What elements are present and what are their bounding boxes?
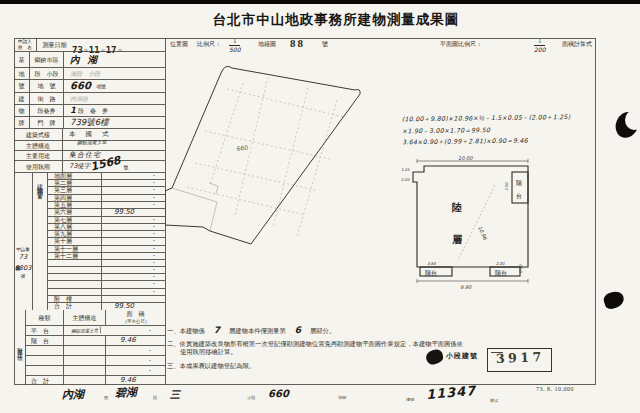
address-house-row: 牌 門 牌 739號6樓: [14, 117, 165, 129]
address-lane-row: 物 段巷弄 1 段 巷 弄: [14, 105, 165, 117]
floor-row-label: 第八層: [48, 224, 102, 230]
house-number-label: 門 牌: [30, 117, 64, 128]
annex-row: ·: [26, 356, 165, 366]
floor-row: ·: [48, 274, 165, 281]
balcony-tr-label-2: 台: [516, 192, 522, 200]
site-district-row: 基 鄉鎮市區 內湖: [14, 52, 165, 68]
application-label: 申請書: [16, 246, 30, 252]
floor-row-label: 第三層: [48, 187, 102, 193]
floor-row: ·: [48, 289, 165, 296]
footer-section-unit: 段: [153, 396, 157, 400]
balcony-br-label: 陽台: [495, 269, 507, 277]
note1-text-b: 層建物本件僅測量第: [229, 327, 286, 334]
applicant-label-line2: 姓 名: [16, 45, 33, 50]
site-parcel-row: 號 地 號 660 地號: [14, 80, 165, 93]
scan-ink-blob-2: [602, 289, 626, 310]
floor-row-value: ·: [102, 260, 165, 266]
floor-row: 第九層 ·: [48, 231, 165, 238]
cadastral-map-unit: 號: [322, 41, 328, 47]
annex-kind: 陽 台: [26, 336, 64, 345]
cadastral-map-label: 地籍圖: [258, 41, 276, 47]
annex-kind-header: 種類: [26, 310, 64, 325]
dim-balcony-tr: 3.50: [504, 182, 509, 191]
annex-area: ·: [106, 348, 165, 354]
floor-row-label: 合 計: [48, 303, 102, 310]
street-value: 內湖路: [70, 96, 88, 102]
parcel-unit: 地號: [96, 84, 106, 89]
floor-plan-drawing: 陸 層 陽 台 陽台 陽台 10.00 9.90 10.96 1.25 2.00…: [400, 155, 596, 295]
section-label: 段 小段: [30, 68, 64, 79]
annex-area: ·: [106, 368, 165, 374]
address-street-row: 建 街 路 內湖路: [14, 93, 165, 105]
scanned-survey-document: 台北市中山地政事務所建物測量成果圖 申請人 姓 名 測量日期 73年11月17日…: [0, 0, 640, 413]
floor-row: 第十一層 ·: [48, 246, 165, 253]
footer-line: 內湖 區 碧湖 段 三 小段 660 地號 建號 11347 棟次 73. 8.…: [0, 386, 640, 413]
floor-row-label: 第十層: [48, 238, 102, 244]
applicant-name-cell: 申請人 姓 名: [14, 38, 37, 52]
floor-row: 第十層 ·: [48, 238, 165, 245]
floor-row-label: 第九層: [48, 231, 102, 237]
floor-row-label: [48, 274, 102, 280]
floor-row-value: ·: [102, 217, 165, 223]
annex-area: 9.46: [106, 377, 165, 384]
site-stub-3: 號: [14, 80, 30, 92]
district-label: 鄉鎮市區: [30, 52, 64, 67]
application-unit: 號: [16, 273, 30, 279]
dim-notch-2: 2.00: [401, 177, 410, 182]
floor-row-value: 99.50: [102, 209, 165, 216]
location-map-label: 位置圖: [170, 41, 188, 47]
floor-row-label: 第十一層: [48, 246, 102, 252]
footer-building-number: 11347: [426, 384, 477, 401]
floor-row-value: ·: [102, 289, 165, 295]
floor-row-label: 附 樓: [48, 296, 102, 302]
annex-structure: [64, 336, 106, 345]
scan-ink-blob-1-cut: [625, 110, 640, 130]
footer-building-label: 建號: [406, 398, 415, 402]
annex-area-header-line2: （平方公尺）: [122, 318, 149, 323]
location-scale-fraction: 1 500: [229, 38, 240, 53]
annex-structure: [64, 346, 106, 355]
structure-row: 主體構造 鋼筋混凝土造: [14, 141, 165, 151]
note1-text-a: 本建物係: [180, 327, 205, 334]
footer-parcel: 660: [268, 389, 289, 399]
floor-row-value: ·: [102, 231, 165, 237]
room-label-1: 陸: [452, 202, 462, 213]
area-formula: (10.00＋9.80)×10.96×½－1.5×0.05－(2.00＋1.25…: [402, 111, 594, 148]
note-line-1: 一、本建物係7層建物本件僅測量第6層部分。: [167, 326, 467, 336]
annex-stub: 附屬建物: [14, 310, 26, 385]
survey-date-label: 測量日期: [37, 38, 72, 52]
annex-structure: [64, 376, 106, 385]
plan-scale-fraction: 1 200: [534, 38, 545, 53]
site-section-row: 地 段 小段 湖段 小段: [14, 68, 165, 80]
dim-bottom: 9.90: [460, 284, 472, 290]
annex-kind: [26, 346, 64, 355]
floor-row: 第四層 ·: [48, 195, 165, 202]
annex-area-header: 面 積 （平方公尺）: [106, 310, 165, 325]
floor-row: 第二層 ·: [48, 180, 165, 187]
annex-area: ·: [106, 328, 165, 334]
section-value: 湖段 小段: [70, 71, 100, 77]
location-scale-label: 比例尺：: [197, 41, 221, 47]
floor-row-value: ·: [102, 224, 165, 230]
floor-row-value: 99.50: [102, 303, 165, 310]
annex-row: 陽 台 9.46: [26, 336, 165, 346]
address-stub-3: 牌: [14, 117, 30, 128]
location-scale-numerator: 1: [229, 38, 240, 46]
address-stub-2: 物: [14, 105, 30, 116]
floor-row-label: 第四層: [48, 195, 102, 201]
floor-row-value: ·: [102, 253, 165, 259]
plan-scale-numerator: 1: [534, 38, 545, 46]
floor-row-value: ·: [102, 281, 165, 287]
floor-area-stub-main: 建物面積: [37, 179, 43, 187]
floor-row: 地面層 ·: [48, 173, 165, 180]
application-number-block: 申請書 73 宙字第 8803 號: [14, 245, 32, 280]
floor-row: 第三層 ·: [48, 187, 165, 194]
area-formula-label: 面積計算式: [562, 41, 592, 47]
floor-area-stub: 建物面積 （平方公尺）: [32, 173, 48, 310]
floor-row-label: [48, 281, 102, 287]
floor-row-label: 第七層: [48, 217, 102, 223]
annex-structure: [64, 356, 106, 365]
floor-row: ·: [48, 260, 165, 267]
floor-row: ·: [48, 281, 165, 288]
plan-scale-label: 平面圖比例尺：: [440, 41, 482, 47]
survey-date-value: 73年11月17日: [72, 38, 165, 52]
site-stub-2: 地: [14, 68, 30, 79]
annex-kind: [26, 356, 64, 365]
cadastral-map-number: 88: [290, 38, 305, 49]
floor-row: 第十二層 ·: [48, 253, 165, 260]
building-style-label: 建築式樣: [14, 129, 63, 140]
location-map-sketch: 660: [165, 55, 380, 300]
footer-section: 碧湖: [115, 387, 137, 399]
floor-row: 第五層 ·: [48, 202, 165, 209]
floor-row: 第七層 ·: [48, 217, 165, 224]
floor-row-label: [48, 267, 102, 273]
document-title: 台北市中山地政事務所建物測量成果圖: [200, 13, 472, 27]
structure-value: 鋼筋混凝土造: [77, 139, 107, 145]
dim-top: 10.00: [458, 155, 473, 161]
use-license-label: 使用執照: [14, 161, 63, 172]
location-scale-denominator: 500: [229, 46, 240, 53]
floor-row-label: 第二層: [48, 180, 102, 186]
dim-notch-1: 1.25: [401, 167, 410, 172]
parcel-boundary: [165, 66, 360, 244]
address-stub-1: 建: [14, 93, 30, 104]
annex-area-header-line1: 面 積: [127, 311, 145, 318]
application-series: 宙字第: [15, 261, 21, 263]
print-code: 73. 8. 10.000: [536, 386, 574, 392]
floor-row-value: ·: [102, 246, 165, 252]
room-label-2: 層: [451, 234, 462, 245]
floor-row-label: 第十二層: [48, 253, 102, 259]
footer-district-unit: 區: [104, 396, 108, 400]
main-use-row: 主要用途 集合住宅: [14, 151, 165, 161]
floor-row-label: 地面層: [48, 173, 102, 179]
parcel-label: 地 號: [30, 80, 64, 92]
annex-row: 平 台 鋼筋混凝土造 ·: [26, 326, 165, 336]
annex-row: ·: [26, 366, 165, 376]
floor-row-value: ·: [102, 238, 165, 244]
building-style-value: 本 國 式: [69, 131, 110, 137]
annex-structure: [64, 366, 106, 375]
license-prefix: 73使字: [69, 163, 90, 170]
dim-balcony-br: 2.81: [496, 261, 505, 266]
floor-row-value: ·: [102, 173, 165, 179]
floor-row-value: ·: [102, 180, 165, 186]
note1-text-c: 層部分。: [310, 327, 335, 334]
floor-row-label: [48, 260, 102, 266]
note1-floor-count: 7: [214, 325, 220, 335]
annex-row: 合 計 9.46: [26, 376, 165, 385]
floor-row-value: ·: [102, 195, 165, 201]
floor-plan-labels: 陸 層 陽 台 陽台 陽台: [425, 179, 522, 277]
main-use-label: 主要用途: [14, 151, 63, 160]
floor-row: 合 計 99.50: [48, 303, 165, 310]
annex-area: ·: [106, 358, 165, 364]
plan-scale-denominator: 200: [534, 46, 545, 53]
parcel-step-lines: [172, 183, 218, 231]
annex-table: 平 台 鋼筋混凝土造 · 陽 台 9.46 · · · 合 計: [26, 326, 165, 385]
floor-row-label: 第五層: [48, 202, 102, 208]
footer-parcel-unit: 地號: [338, 396, 347, 400]
dim-diagonal: 10.96: [477, 225, 489, 241]
floor-row-label: 第六層: [48, 209, 102, 216]
note1-number: 一、: [167, 327, 180, 334]
footer-subsection-unit: 小段: [247, 396, 256, 400]
interior-parcel-lines: [187, 77, 343, 237]
structure-label: 主體構造: [14, 141, 63, 150]
stamp-label: 小段建號: [446, 353, 478, 360]
dim-side-right: 0.90: [518, 264, 523, 273]
street-label: 街 路: [30, 93, 64, 104]
site-stub-1: 基: [14, 52, 30, 67]
footer-district: 內湖: [62, 389, 84, 400]
floor-row: 附 樓: [48, 296, 165, 303]
annex-kind: 平 台: [26, 326, 64, 335]
map-parcel-number: 660: [236, 143, 248, 152]
note-line-2: 二、依實施建築改良物所有權第一次登記僅勘測建物位置免再勘測建物平面圖作業規定，本…: [167, 340, 467, 357]
applicant-label-line1: 申請人: [16, 39, 33, 44]
license-unit: 號: [124, 164, 129, 169]
parcel-number: 660: [70, 81, 91, 91]
site-address-table: 基 鄉鎮市區 內湖 地 段 小段 湖段 小段 號 地 號 660 地號 建 街 …: [14, 52, 165, 173]
floor-plan-outline: [413, 166, 528, 276]
floor-row: ·: [48, 267, 165, 274]
note-line-3: 三、本成果表以建物登記為限。: [167, 362, 467, 371]
floor-row: 第八層 ·: [48, 224, 165, 231]
annex-stub-label: 附屬建物: [17, 342, 22, 353]
application-number: 8803: [14, 264, 32, 272]
balcony-tr-label-1: 陽: [516, 179, 522, 187]
notes-section: 一、本建物係7層建物本件僅測量第6層部分。 二、依實施建築改良物所有權第一次登記…: [167, 326, 467, 370]
stamp-number: 3917: [496, 351, 545, 366]
use-license-row: 使用執照 73使字 1568 號: [14, 161, 165, 173]
floor-row-value: ·: [102, 274, 165, 280]
house-number-value: 739號6樓: [70, 118, 109, 127]
dim-balcony-bl: 3.64: [427, 261, 436, 266]
annex-kind: 合 計: [26, 376, 64, 385]
annex-header: 種類 主體構造 面 積 （平方公尺）: [26, 310, 165, 326]
floor-row-value: ·: [102, 187, 165, 193]
annex-kind: [26, 366, 64, 375]
floor-row-value: ·: [102, 267, 165, 273]
balcony-bl-label: 陽台: [425, 269, 437, 277]
annex-structure: 鋼筋混凝土造: [69, 327, 101, 335]
annex-row: ·: [26, 346, 165, 356]
annex-area: 9.46: [106, 337, 165, 344]
annex-structure-header: 主體構造: [64, 310, 106, 325]
floor-row: 第六層 99.50: [48, 209, 165, 217]
floor-area-table: 地面層 · 第二層 · 第三層 · 第四層 · 第五層 · 第六層 99.50 …: [48, 173, 165, 310]
note1-floor-measured: 6: [295, 325, 301, 335]
district-value: 內湖: [70, 55, 105, 65]
lane-print: 段 巷 弄: [78, 108, 108, 114]
floor-row-value: ·: [102, 202, 165, 208]
lane-number: 1: [70, 106, 76, 115]
floor-row-label: [48, 289, 102, 295]
footer-subsection: 三: [170, 390, 180, 400]
footer-building-suffix: 棟次: [490, 399, 499, 403]
scan-edge-bar: [0, 0, 640, 4]
main-use-value: 集合住宅: [69, 152, 101, 159]
lane-label: 段巷弄: [30, 105, 64, 116]
application-year: 73: [14, 253, 32, 261]
